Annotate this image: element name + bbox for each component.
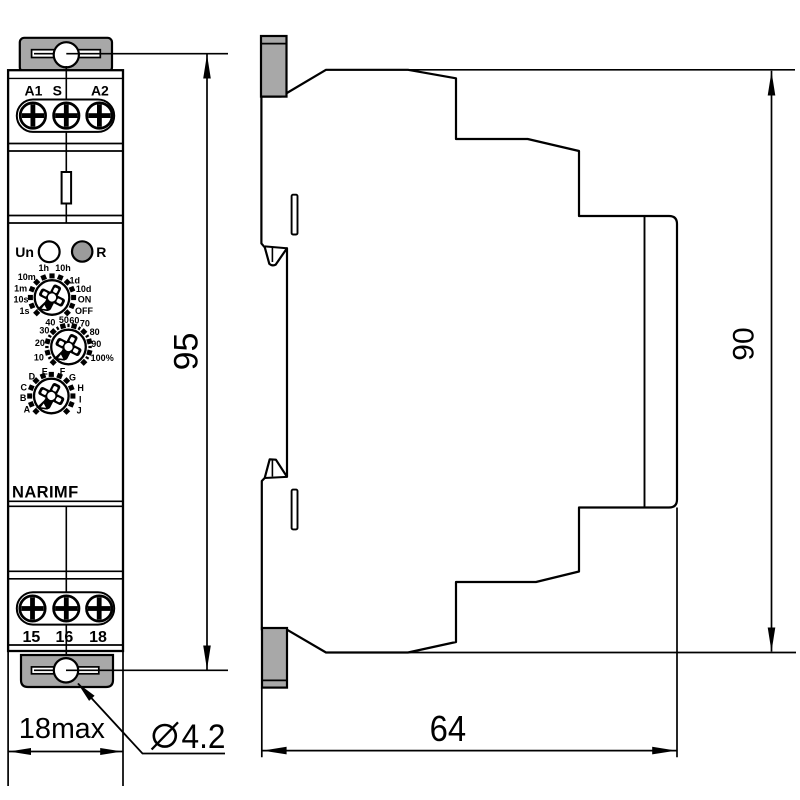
svg-text:64: 64 (430, 708, 467, 749)
svg-text:10h: 10h (55, 263, 71, 273)
svg-text:I: I (79, 394, 82, 404)
svg-text:30: 30 (39, 326, 49, 336)
svg-text:18: 18 (89, 629, 107, 646)
svg-text:A1: A1 (25, 83, 43, 99)
svg-text:1m: 1m (14, 283, 27, 293)
svg-text:H: H (77, 383, 84, 393)
svg-text:A2: A2 (91, 83, 109, 99)
svg-text:A: A (24, 404, 31, 414)
svg-text:Un: Un (15, 244, 34, 260)
svg-text:4.2: 4.2 (182, 718, 226, 756)
svg-text:C: C (21, 382, 28, 392)
svg-text:90: 90 (728, 327, 761, 360)
svg-text:1h: 1h (39, 263, 50, 273)
svg-text:50: 50 (59, 315, 69, 325)
svg-text:15: 15 (23, 629, 41, 646)
svg-text:1s: 1s (19, 306, 29, 316)
svg-text:10m: 10m (18, 272, 36, 282)
svg-text:80: 80 (90, 327, 100, 337)
svg-text:90: 90 (91, 339, 101, 349)
svg-text:NARIMF: NARIMF (12, 484, 79, 502)
svg-text:100%: 100% (91, 353, 114, 363)
svg-text:10: 10 (34, 352, 44, 362)
svg-text:G: G (69, 372, 76, 382)
svg-text:10d: 10d (76, 284, 92, 294)
svg-text:F: F (60, 367, 66, 377)
svg-text:R: R (96, 244, 106, 260)
svg-text:10s: 10s (13, 295, 28, 305)
svg-text:S: S (53, 83, 62, 99)
svg-text:20: 20 (35, 338, 45, 348)
svg-text:J: J (77, 406, 82, 416)
svg-text:95: 95 (168, 333, 206, 371)
svg-text:E: E (42, 367, 48, 377)
svg-text:70: 70 (80, 318, 90, 328)
svg-text:OFF: OFF (75, 306, 93, 316)
svg-text:18max: 18max (19, 713, 105, 745)
svg-text:60: 60 (69, 316, 79, 326)
svg-text:B: B (20, 393, 27, 403)
svg-text:16: 16 (56, 629, 74, 646)
svg-text:ON: ON (78, 294, 92, 304)
svg-text:D: D (29, 372, 36, 382)
